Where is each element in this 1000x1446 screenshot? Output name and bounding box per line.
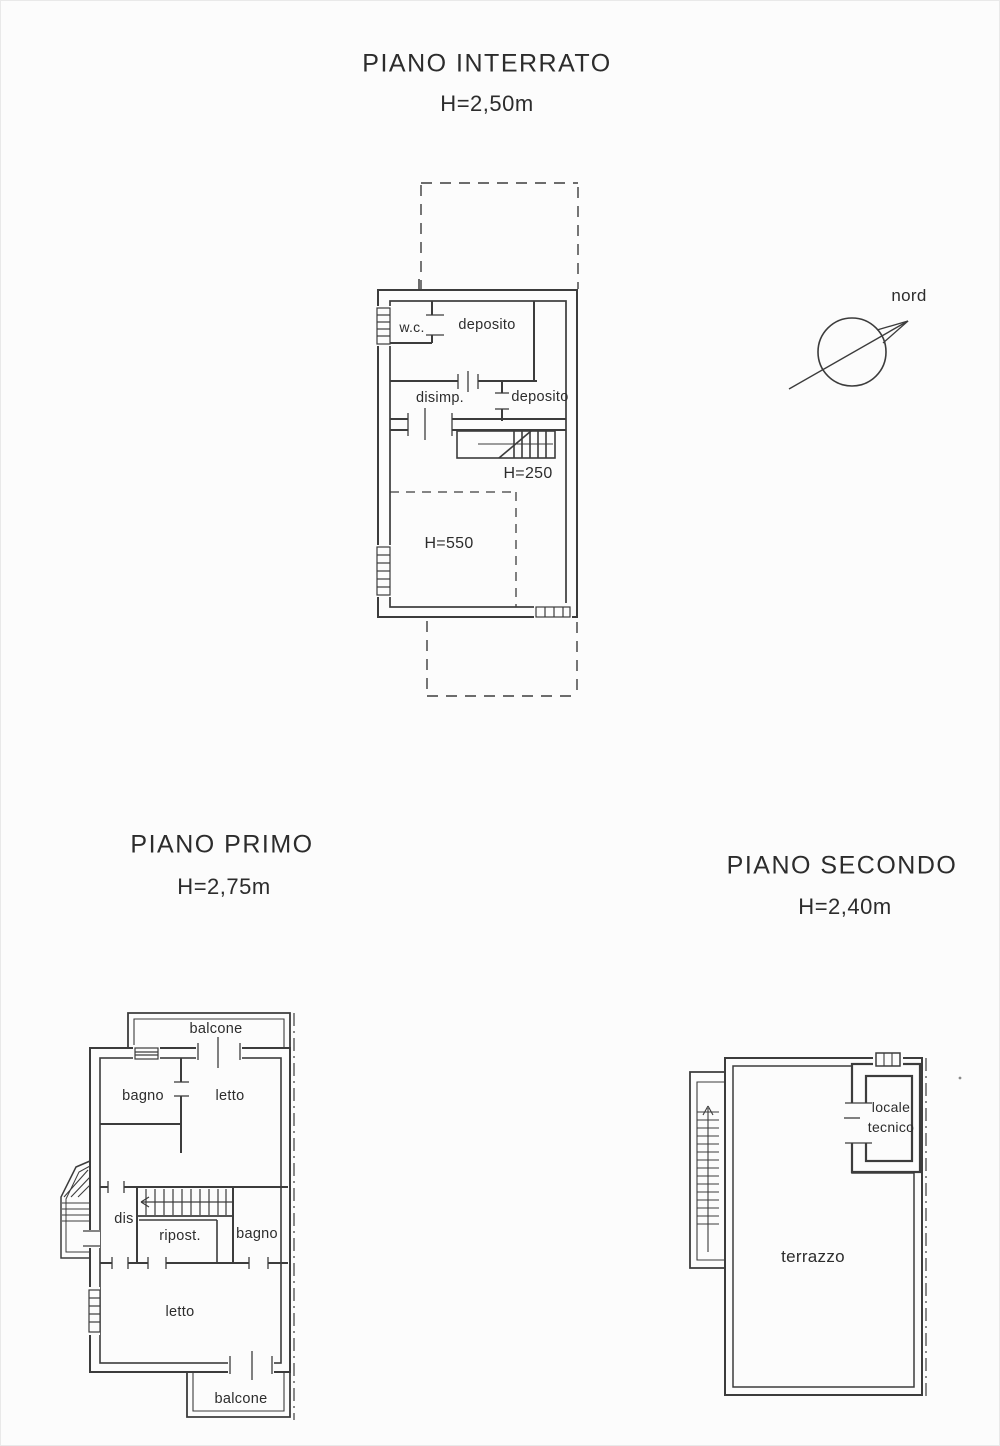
room-label-letto-bottom: letto [166, 1304, 195, 1320]
room-label-bagno-top: bagno [122, 1088, 164, 1104]
room-label-letto-top: letto [216, 1088, 245, 1104]
room-label-locale-tecnico-line2: tecnico [868, 1119, 914, 1135]
secondo-stairs [690, 1072, 725, 1268]
primo-wall-openings [86, 1044, 274, 1375]
interrato-title: PIANO INTERRATO [362, 50, 611, 79]
secondo-locale-tecnico-walls [844, 1064, 920, 1172]
floor-plan-sheet: PIANO INTERRATO H=2,50m nord w.c. deposi… [0, 0, 1000, 1446]
annotation-h550: H=550 [424, 535, 473, 553]
north-compass-icon [789, 318, 908, 389]
room-label-balcone-top: balcone [190, 1021, 243, 1037]
room-label-deposito-right: deposito [511, 389, 568, 405]
compass-north-label: nord [891, 286, 926, 306]
primo-height-label: H=2,75m [177, 874, 270, 900]
room-label-disimp: disimp. [416, 390, 464, 406]
room-label-ripost: ripost. [159, 1228, 201, 1244]
primo-outer-walls [90, 1048, 290, 1372]
primo-external-stairs [61, 1161, 90, 1258]
secondo-boundary-line [926, 1058, 961, 1398]
interrato-stairs [457, 431, 555, 458]
secondo-title: PIANO SECONDO [727, 852, 958, 881]
secondo-height-label: H=2,40m [798, 894, 891, 920]
interrato-wall-openings [374, 306, 572, 620]
room-label-terrazzo: terrazzo [781, 1247, 845, 1267]
room-label-locale-tecnico-line1: locale [872, 1099, 910, 1115]
interrato-height-label: H=2,50m [440, 91, 533, 117]
annotation-h250: H=250 [503, 465, 552, 483]
room-label-wc: w.c. [399, 319, 424, 335]
secondo-chimney [873, 1051, 903, 1068]
primo-title: PIANO PRIMO [130, 831, 313, 860]
primo-internal-stairs [137, 1189, 233, 1216]
room-label-dis: dis [114, 1211, 133, 1227]
room-label-balcone-bottom: balcone [215, 1391, 268, 1407]
plan-linework [0, 0, 1000, 1446]
room-label-deposito-top: deposito [458, 317, 515, 333]
interrato-outer-walls [378, 290, 577, 617]
room-label-bagno-bottom: bagno [236, 1226, 278, 1242]
